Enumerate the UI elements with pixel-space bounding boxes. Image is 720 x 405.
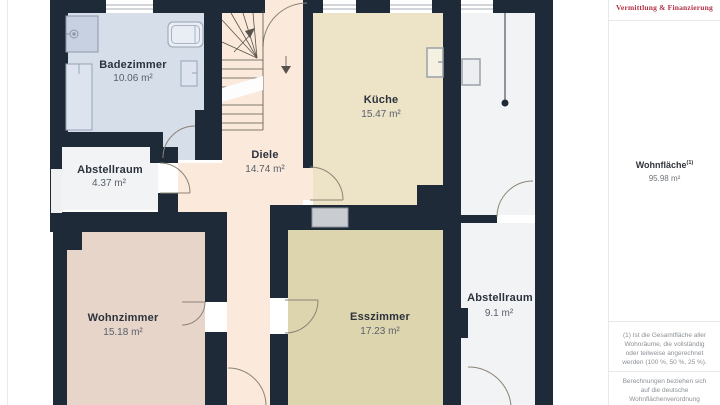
footnote-marker: (1): [687, 160, 694, 166]
entrance-door-niche: [51, 169, 62, 213]
living-area-value: 95.98 m²: [649, 174, 681, 183]
room-label-esszimmer: Esszimmer: [350, 311, 410, 323]
room-floor-entrance: [461, 13, 535, 215]
floorplan-page: Badezimmer 10.06 m² Abstellraum 4.37 m² …: [0, 0, 720, 405]
window-entrance: [461, 0, 493, 13]
info-sidebar: Vermittlung & Finanzierung Wohnfläche(1)…: [608, 0, 720, 405]
window-kueche-1: [323, 0, 356, 13]
bathroom-cabinet-icon: [66, 64, 92, 130]
living-area-label: Wohnfläche(1): [636, 160, 694, 170]
room-area-esszimmer: 17.23 m²: [360, 326, 400, 337]
shower-icon: [66, 16, 98, 52]
boiler-icon: [462, 59, 480, 85]
room-area-kueche: 15.47 m²: [361, 109, 401, 120]
room-label-kueche: Küche: [364, 94, 399, 106]
room-area-abstellraum-2: 9.1 m²: [485, 308, 514, 319]
room-area-diele: 14.74 m²: [245, 164, 285, 175]
stair-top-opening: [265, 0, 303, 13]
living-area-block: Wohnfläche(1) 95.98 m²: [609, 21, 720, 321]
footnote-1: (1) Ist die Gesamtfläche aller Wohnräume…: [609, 321, 720, 371]
diele-kueche-door-gap: [303, 168, 313, 200]
room-label-abstellraum-2: Abstellraum: [467, 292, 533, 304]
sideboard-icon: [312, 208, 348, 227]
window-badezimmer: [106, 0, 153, 13]
footnote-2: Berechnungen beziehen sich auf die deuts…: [609, 371, 720, 405]
kitchen-sink-icon: [427, 48, 443, 77]
window-kueche-2: [390, 0, 432, 13]
room-label-badezimmer: Badezimmer: [99, 59, 167, 71]
room-label-wohnzimmer: Wohnzimmer: [88, 312, 159, 324]
room-label-abstellraum-1: Abstellraum: [77, 164, 143, 176]
bathtub-icon: [168, 22, 203, 47]
room-label-diele: Diele: [251, 149, 278, 161]
room-area-abstellraum-1: 4.37 m²: [92, 178, 127, 189]
room-area-badezimmer: 10.06 m²: [113, 73, 153, 84]
bathroom-sink-icon: [181, 61, 197, 86]
room-area-wohnzimmer: 15.18 m²: [103, 327, 143, 338]
